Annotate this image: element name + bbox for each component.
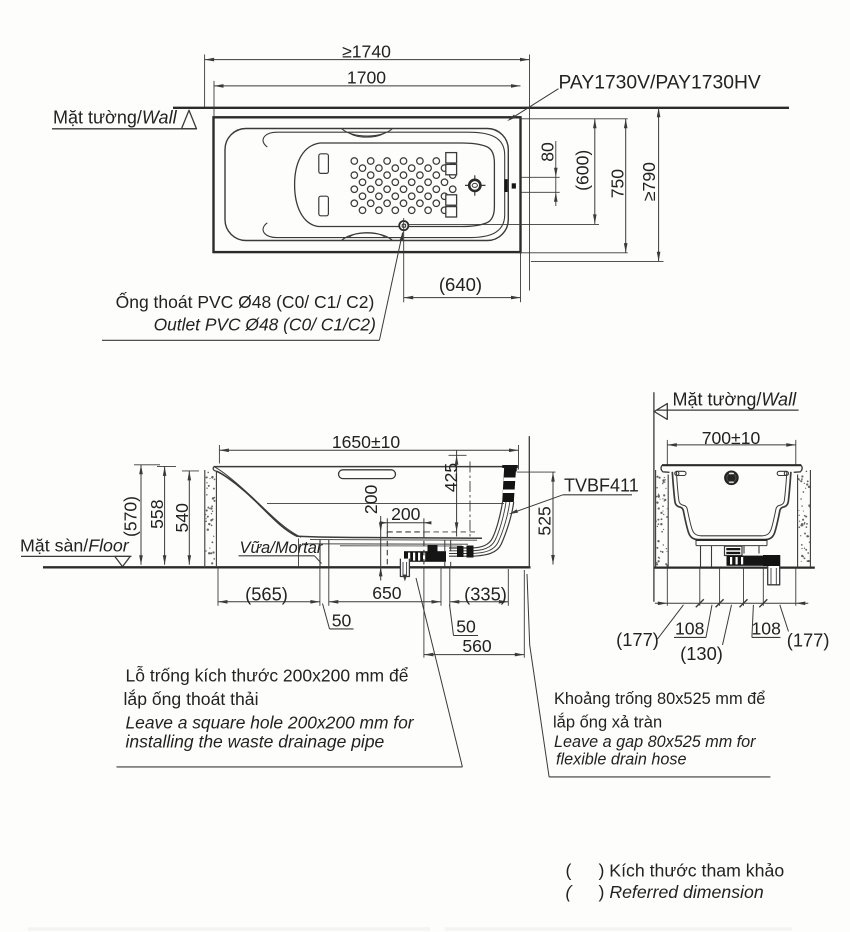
svg-text:560: 560 <box>462 636 492 656</box>
svg-text:1700: 1700 <box>347 68 386 88</box>
svg-text:(640): (640) <box>439 274 482 295</box>
svg-text:425: 425 <box>441 463 461 493</box>
svg-text:Vữa/Mortar: Vữa/Mortar <box>240 539 324 557</box>
svg-text:Khoảng trống 80x525 mm để: Khoảng trống 80x525 mm để <box>554 690 765 708</box>
svg-text:Outlet PVC Ø48 (C0/ C1/C2): Outlet PVC Ø48 (C0/ C1/C2) <box>154 314 376 334</box>
svg-text:lắp ống xả tràn: lắp ống xả tràn <box>553 713 662 732</box>
svg-text:80: 80 <box>538 142 558 162</box>
svg-text:200: 200 <box>361 485 381 515</box>
svg-text:(565): (565) <box>245 583 288 604</box>
svg-text:≥790: ≥790 <box>639 162 659 201</box>
svg-text:≥1740: ≥1740 <box>342 42 391 62</box>
svg-text:(600): (600) <box>572 150 592 191</box>
svg-text:525: 525 <box>534 506 554 536</box>
svg-text:TVBF411: TVBF411 <box>564 476 639 496</box>
svg-text:(: ( <box>566 882 574 902</box>
svg-text:1650±10: 1650±10 <box>332 432 401 452</box>
svg-text:(177): (177) <box>787 630 830 651</box>
svg-text:) Kích thước tham khảo: ) Kích thước tham khảo <box>599 861 785 881</box>
svg-text:(570): (570) <box>121 496 141 537</box>
svg-text:) Referred dimension: ) Referred dimension <box>599 882 764 902</box>
svg-text:Mặt sàn/Floor: Mặt sàn/Floor <box>20 536 130 556</box>
svg-text:108: 108 <box>675 618 705 638</box>
svg-text:Leave a square hole 200x200 m: Leave a square hole 200x200 mm for <box>126 713 415 733</box>
svg-text:Leave a gap 80x525 mm for: Leave a gap 80x525 mm for <box>554 733 756 751</box>
svg-text:lắp ống thoát thải: lắp ống thoát thải <box>124 688 259 709</box>
svg-text:(130): (130) <box>680 643 723 664</box>
svg-text:(335): (335) <box>464 584 507 605</box>
svg-text:Lỗ trống kích thước 200x200 mm: Lỗ trống kích thước 200x200 mm để <box>126 665 409 686</box>
svg-text:558: 558 <box>147 499 167 529</box>
svg-text:PAY1730V/PAY1730HV: PAY1730V/PAY1730HV <box>559 73 761 94</box>
svg-text:108: 108 <box>752 618 782 638</box>
svg-text:(177): (177) <box>616 629 659 650</box>
svg-text:flexible drain hose: flexible drain hose <box>556 751 686 769</box>
svg-text:650: 650 <box>372 583 402 603</box>
svg-text:Mặt tường/Wall: Mặt tường/Wall <box>53 108 178 128</box>
svg-text:540: 540 <box>172 503 192 533</box>
svg-text:Ống thoát PVC Ø48 (C0/ C1/ C2): Ống thoát PVC Ø48 (C0/ C1/ C2) <box>116 291 375 312</box>
svg-text:700±10: 700±10 <box>702 428 761 448</box>
svg-text:200: 200 <box>391 504 421 524</box>
svg-text:50: 50 <box>456 617 476 637</box>
svg-text:750: 750 <box>607 169 627 199</box>
svg-text:Mặt tường/Wall: Mặt tường/Wall <box>673 390 798 410</box>
svg-text:50: 50 <box>332 611 352 631</box>
svg-text:installing the waste drainage: installing the waste drainage pipe <box>126 732 385 752</box>
svg-text:(: ( <box>566 861 572 881</box>
